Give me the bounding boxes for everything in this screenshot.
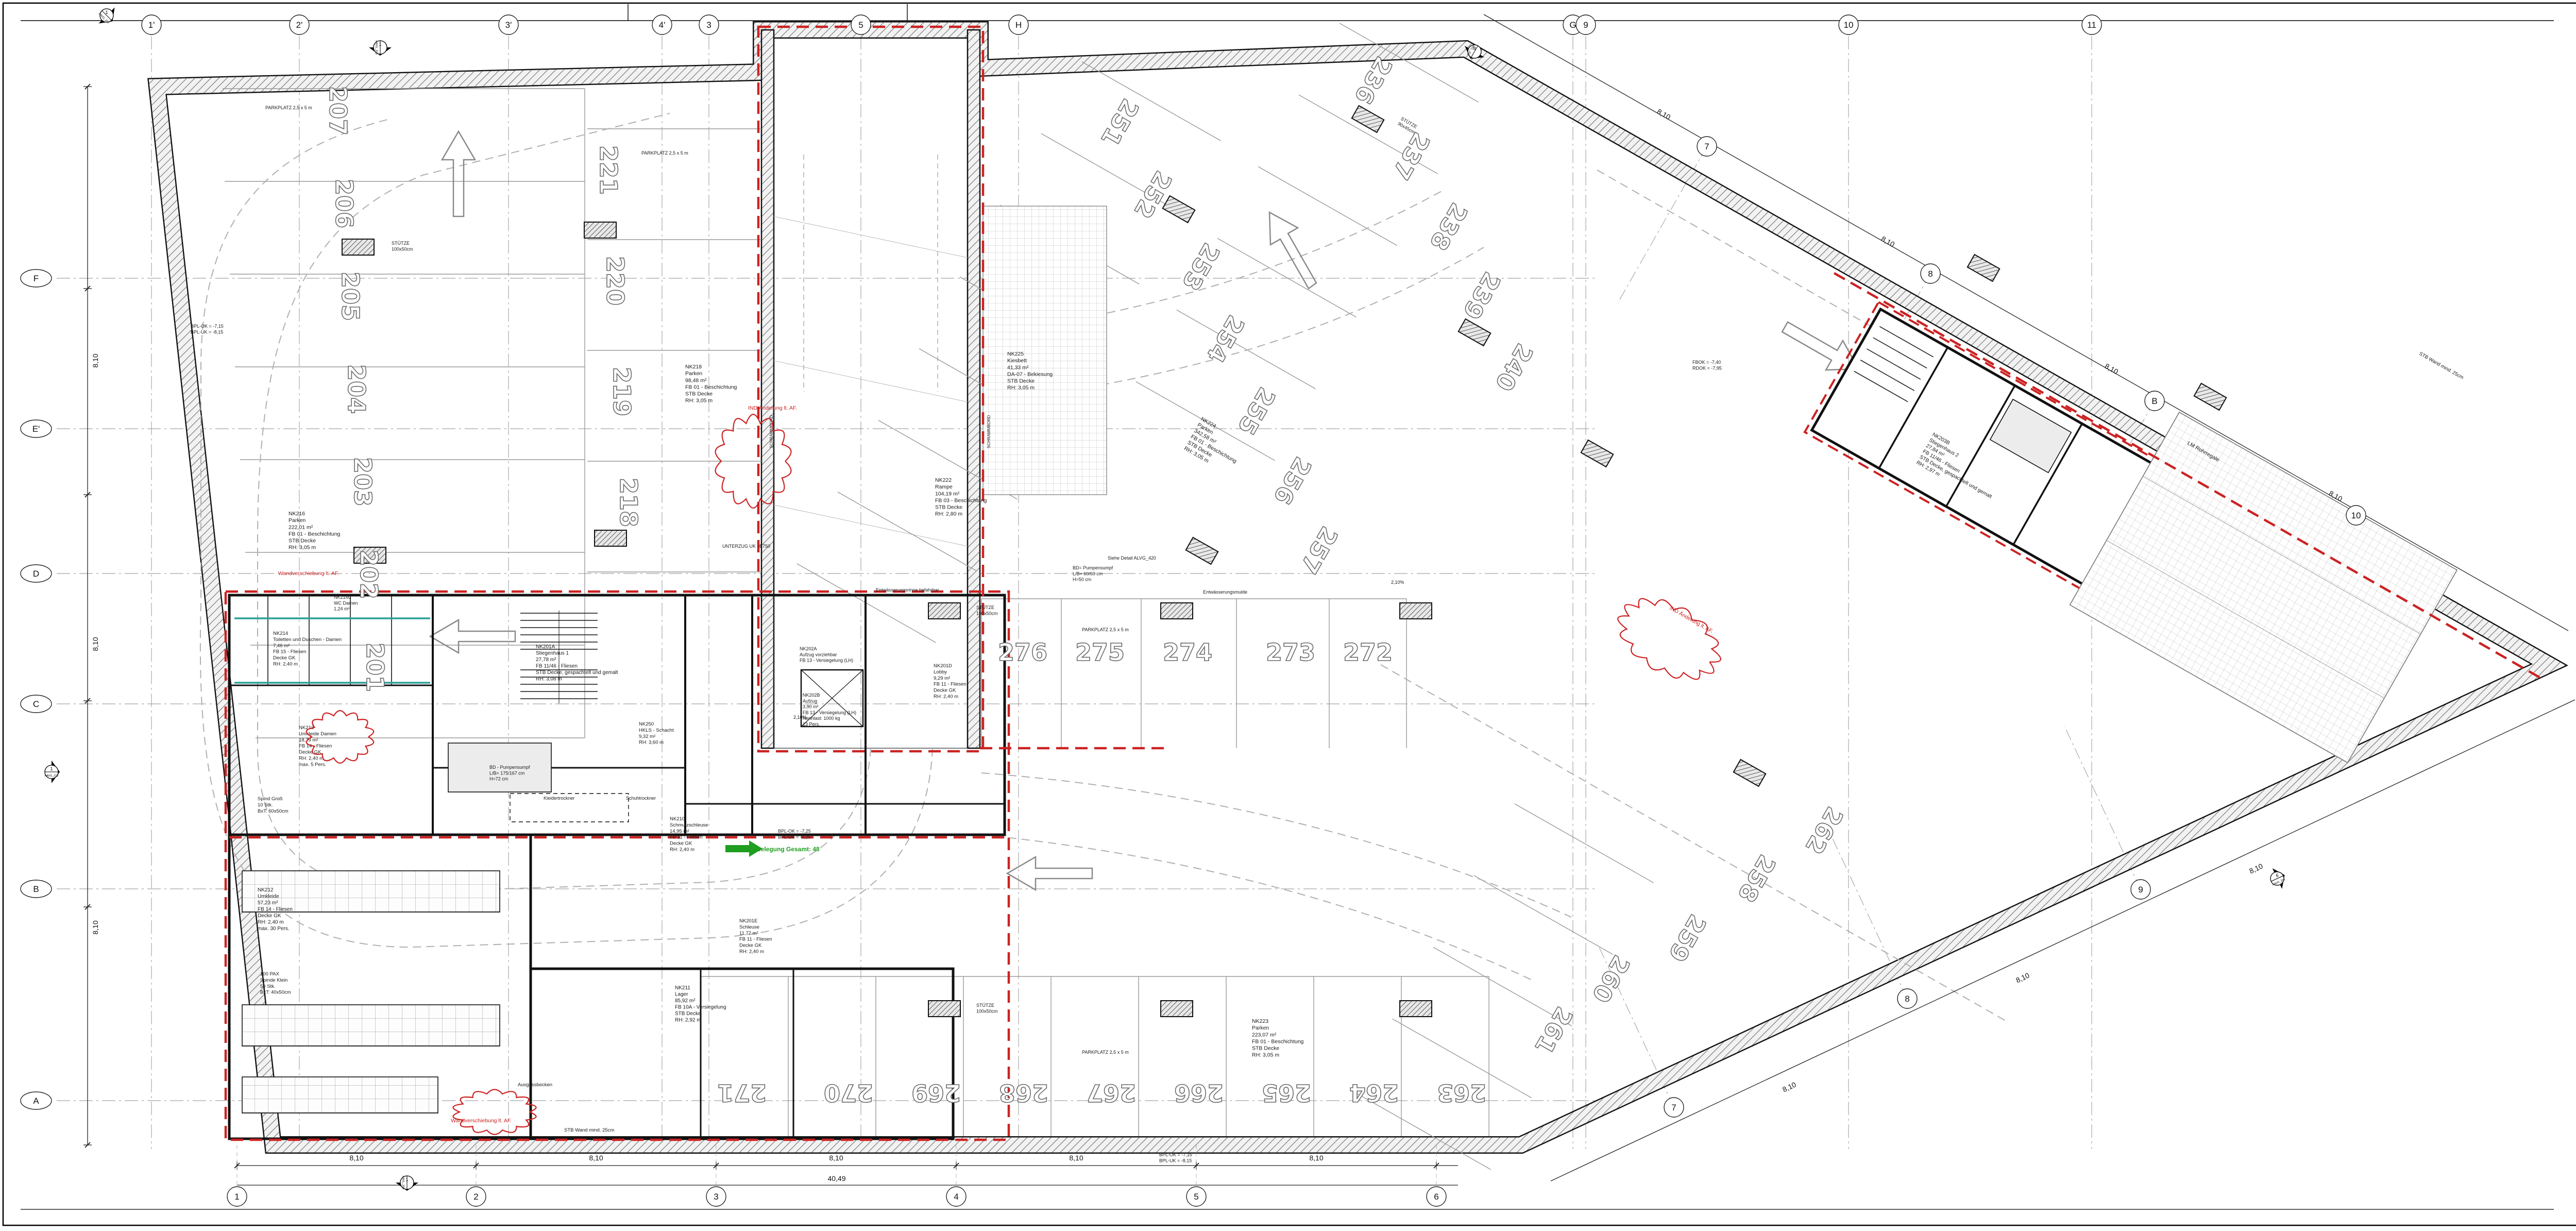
svg-text:AAVG_210: AAVG_210 [44, 774, 58, 778]
column [1161, 603, 1193, 619]
svg-text:3': 3' [505, 20, 512, 30]
dimension-label: 40,49 [827, 1174, 845, 1183]
svg-text:3: 3 [706, 20, 711, 30]
svg-text:1: 1 [50, 766, 53, 771]
grid-bubble: 7 [1664, 1098, 1684, 1117]
grid-bubble: 8 [1921, 264, 1940, 283]
svg-text:7: 7 [1704, 142, 1709, 151]
svg-text:1: 1 [405, 1177, 408, 1182]
svg-text:9: 9 [1583, 20, 1588, 30]
svg-text:1: 1 [105, 10, 108, 15]
grid-bubble: 1' [142, 15, 161, 35]
grid-bubble: F [21, 269, 52, 287]
plan-annotation: PARKPLATZ 2,5 x 5 m [1082, 1050, 1129, 1055]
dimension-label: 8,10 [91, 637, 99, 651]
svg-text:AAVL_200: AAVL_200 [401, 1176, 404, 1189]
grid-bubble: 5 [851, 15, 871, 35]
stall-number: 264 [1349, 1079, 1399, 1107]
grid-bubble: 8 [1897, 989, 1917, 1008]
grid-bubble: 2' [290, 15, 309, 35]
svg-text:3: 3 [714, 1192, 718, 1202]
svg-text:10: 10 [1844, 20, 1854, 30]
stall-number: 265 [1262, 1079, 1311, 1107]
svg-text:H: H [1015, 20, 1022, 30]
grid-bubble: 7 [1697, 137, 1717, 156]
svg-text:AAVG_200: AAVG_200 [375, 40, 378, 54]
grid-bubble: 11 [2082, 15, 2102, 35]
svg-text:F: F [33, 274, 39, 283]
stall-number: 205 [336, 272, 364, 321]
stall-number: 269 [911, 1079, 961, 1107]
svg-text:6: 6 [2276, 873, 2278, 878]
dimension-label: 8,10 [349, 1154, 363, 1162]
stall-number: 220 [601, 256, 629, 306]
plan-annotation: 2,10% [1391, 580, 1404, 585]
plan-annotation: PARKPLATZ 2,5 x 5 m [641, 150, 688, 156]
stall-number: 266 [1174, 1079, 1224, 1107]
plan-annotation: SCHRAMMBORD [987, 415, 991, 448]
column [584, 222, 616, 238]
grid-bubble: 6 [1427, 1187, 1446, 1206]
dimension-label: 8,10 [829, 1154, 843, 1162]
plan-annotation: BPL-OK = -7,15BPL-UK = -8,15 [191, 324, 224, 334]
svg-text:2: 2 [473, 1192, 478, 1202]
drawing-sheet: 2072062052042032022012212202192182762752… [0, 0, 2576, 1228]
floor-plan-canvas: 2072062052042032022012212202192182762752… [0, 0, 2576, 1228]
grid-bubble: H [1009, 15, 1028, 35]
svg-text:4': 4' [659, 20, 666, 30]
stall-number: 272 [1343, 638, 1393, 666]
plan-annotation: Wandverschiebung lt. AF. [451, 1118, 512, 1124]
grid-bubble: B [21, 880, 52, 898]
grid-bubble: 4 [946, 1187, 966, 1206]
dimension-label: 8,10 [589, 1154, 603, 1162]
column [1400, 603, 1432, 619]
svg-text:A: A [33, 1096, 39, 1106]
stall-number: 270 [824, 1079, 873, 1107]
stall-number: 203 [349, 457, 377, 507]
plan-annotation: FBOK = -7,40RDOK = -7,95 [1692, 360, 1722, 370]
stall-number: 206 [330, 179, 358, 228]
grid-bubble: 10 [1839, 15, 1858, 35]
grid-bubble: 2 [466, 1187, 486, 1206]
stall-number: 268 [999, 1079, 1048, 1107]
plan-annotation: UNTERZUG UK -4,750 [722, 544, 770, 549]
svg-text:B: B [33, 884, 39, 894]
svg-text:1: 1 [379, 42, 381, 47]
stall-number: 275 [1075, 638, 1125, 666]
grid-bubble: 10 [2346, 505, 2366, 525]
grid-bubble: B [2145, 391, 2164, 411]
dimension-label: 8,10 [1069, 1154, 1083, 1162]
grid-bubble: 9 [1576, 15, 1596, 35]
stall-number: 207 [324, 86, 352, 136]
plan-annotation: Entwässerungsrinne befahrbar [876, 587, 939, 593]
plan-annotation: STB Wand mind. 25cm [564, 1127, 614, 1133]
plan-annotation: Kleidertrockner [544, 796, 575, 801]
svg-text:7: 7 [1671, 1103, 1676, 1112]
svg-text:4: 4 [954, 1192, 958, 1202]
svg-text:8: 8 [1928, 269, 1933, 279]
stall-number: 218 [615, 478, 642, 527]
grid-bubble: 3 [699, 15, 719, 35]
plan-annotation: Ausgussbecken [518, 1082, 552, 1088]
grid-bubble: 3 [706, 1187, 726, 1206]
svg-text:2': 2' [296, 20, 303, 30]
stall-number: 201 [361, 643, 389, 692]
column [342, 239, 374, 255]
grid-bubble: E' [21, 420, 52, 437]
plan-annotation: 2,10% [793, 715, 807, 720]
dimension-label: 8,10 [91, 353, 99, 367]
column [1161, 1001, 1193, 1017]
stall-number: 273 [1266, 638, 1315, 666]
dimension-label: 8,10 [1309, 1154, 1323, 1162]
plan-annotation: BPL-OK = -7,15BPL-UK = -8,15 [1159, 1152, 1192, 1163]
svg-text:11: 11 [2087, 20, 2096, 30]
stall-number: 276 [998, 638, 1047, 666]
plan-annotation: IND Änderung lt. AF. [748, 405, 797, 411]
stall-number: 271 [717, 1079, 767, 1107]
plan-annotation: Belegung Gesamt: 48 [756, 846, 820, 853]
plan-annotation: BPL-OK = -7,25BPL-UK = -8,25 [778, 829, 811, 839]
column [928, 1001, 960, 1017]
svg-text:10: 10 [2351, 511, 2361, 520]
column [1400, 1001, 1432, 1017]
dimension-label: 8,10 [91, 920, 99, 934]
plan-annotation: PARKPLATZ 2,5 x 5 m [265, 105, 312, 110]
svg-text:5: 5 [1194, 1192, 1198, 1202]
grid-bubble: A [21, 1092, 52, 1109]
plan-annotation: Entwässerungsmulde [1203, 589, 1247, 595]
stall-number: 219 [608, 367, 636, 416]
stall-number: 263 [1437, 1079, 1486, 1107]
grid-bubble: C [21, 695, 52, 713]
stall-number: 204 [343, 364, 370, 414]
grid-bubble: 4' [652, 15, 672, 35]
column [595, 530, 626, 546]
svg-text:D: D [33, 569, 39, 579]
svg-text:C: C [33, 699, 39, 709]
grid-bubble: 9 [2131, 880, 2150, 899]
svg-text:1': 1' [148, 20, 155, 30]
svg-text:5: 5 [858, 20, 863, 30]
plan-annotation: Siehe Detail ALVG_420 [1108, 555, 1156, 561]
grid-bubble: 5 [1187, 1187, 1206, 1206]
stall-number: 267 [1087, 1079, 1136, 1107]
plan-annotation: PARKPLATZ 2,5 x 5 m [1082, 627, 1129, 632]
svg-text:9: 9 [2138, 885, 2143, 895]
svg-text:8: 8 [1905, 994, 1909, 1004]
stall-number: 221 [595, 145, 622, 195]
svg-text:G: G [1569, 20, 1576, 30]
stall-number: 274 [1163, 638, 1212, 666]
grid-bubble: D [21, 565, 52, 582]
plan-annotation: Wandverschiebung lt. AF. [278, 570, 339, 577]
stall-number: 202 [355, 550, 383, 599]
grid-bubble: 1 [227, 1187, 247, 1206]
column [928, 603, 960, 619]
svg-text:6: 6 [1434, 1192, 1438, 1202]
svg-text:B: B [2151, 396, 2157, 406]
grid-bubble: 3' [499, 15, 518, 35]
plan-annotation: Schuhtrockner [626, 796, 656, 801]
svg-text:E': E' [32, 424, 40, 434]
svg-text:1: 1 [234, 1192, 239, 1202]
